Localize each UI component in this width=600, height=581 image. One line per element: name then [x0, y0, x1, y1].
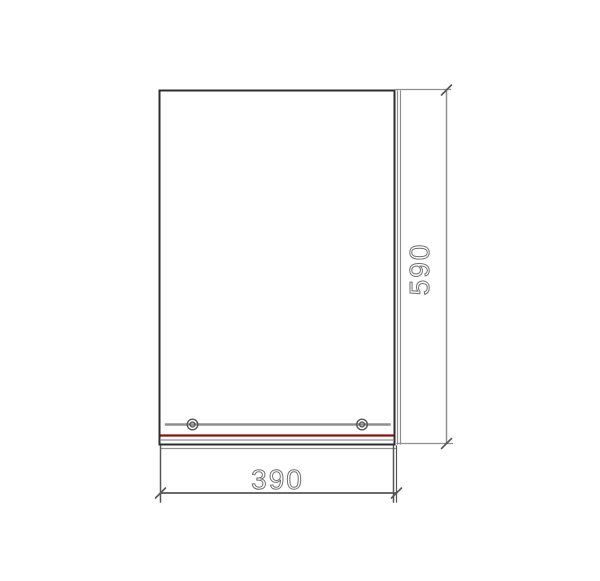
drawing-canvas: 390 590 — [0, 0, 600, 581]
height-dimension-label: 590 — [404, 243, 435, 296]
technical-drawing: 390 590 — [0, 0, 600, 581]
width-dimension-label: 390 — [251, 464, 304, 495]
detail-lines — [161, 91, 401, 449]
object-lines — [160, 91, 395, 445]
mirror-outline — [160, 91, 395, 445]
